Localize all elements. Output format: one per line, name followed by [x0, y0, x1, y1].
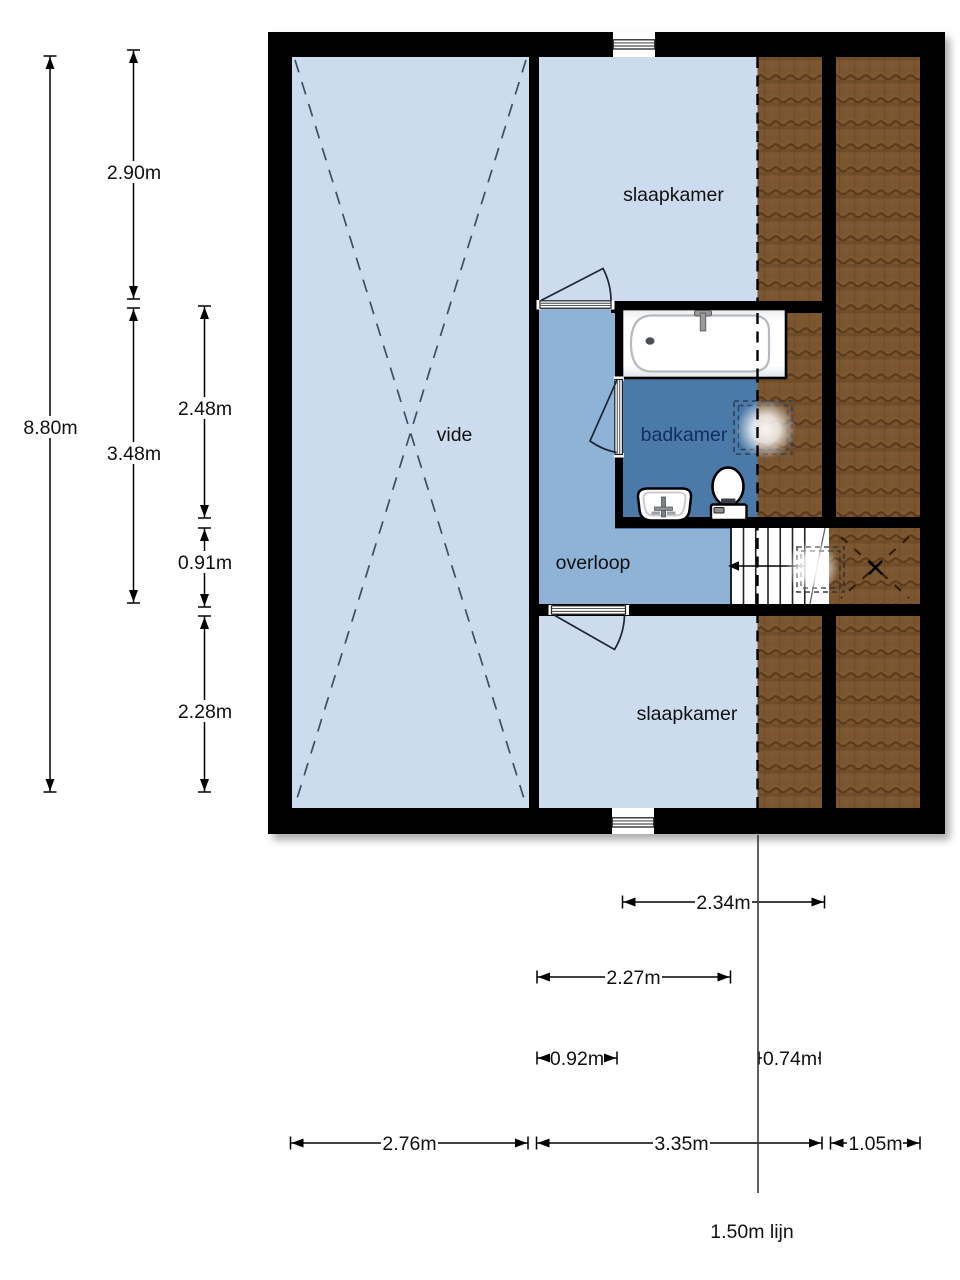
svg-text:vide: vide [437, 424, 473, 446]
svg-text:1.50m lijn: 1.50m lijn [710, 1221, 793, 1243]
svg-text:slaapkamer: slaapkamer [637, 703, 738, 725]
svg-text:2.28m: 2.28m [178, 701, 232, 723]
svg-text:3.48m: 3.48m [107, 443, 161, 465]
svg-text:0.91m: 0.91m [178, 552, 232, 574]
svg-text:1.05m: 1.05m [848, 1133, 902, 1155]
svg-text:0.74m: 0.74m [763, 1048, 817, 1070]
svg-text:2.27m: 2.27m [606, 967, 660, 989]
svg-text:0.92m: 0.92m [550, 1048, 604, 1070]
svg-text:3.35m: 3.35m [654, 1133, 708, 1155]
svg-text:overloop: overloop [556, 552, 631, 574]
svg-text:8.80m: 8.80m [23, 417, 77, 439]
svg-text:2.34m: 2.34m [696, 892, 750, 914]
svg-text:slaapkamer: slaapkamer [623, 184, 724, 206]
svg-text:2.76m: 2.76m [382, 1133, 436, 1155]
svg-text:badkamer: badkamer [641, 424, 728, 446]
svg-text:2.48m: 2.48m [178, 398, 232, 420]
svg-text:2.90m: 2.90m [107, 162, 161, 184]
